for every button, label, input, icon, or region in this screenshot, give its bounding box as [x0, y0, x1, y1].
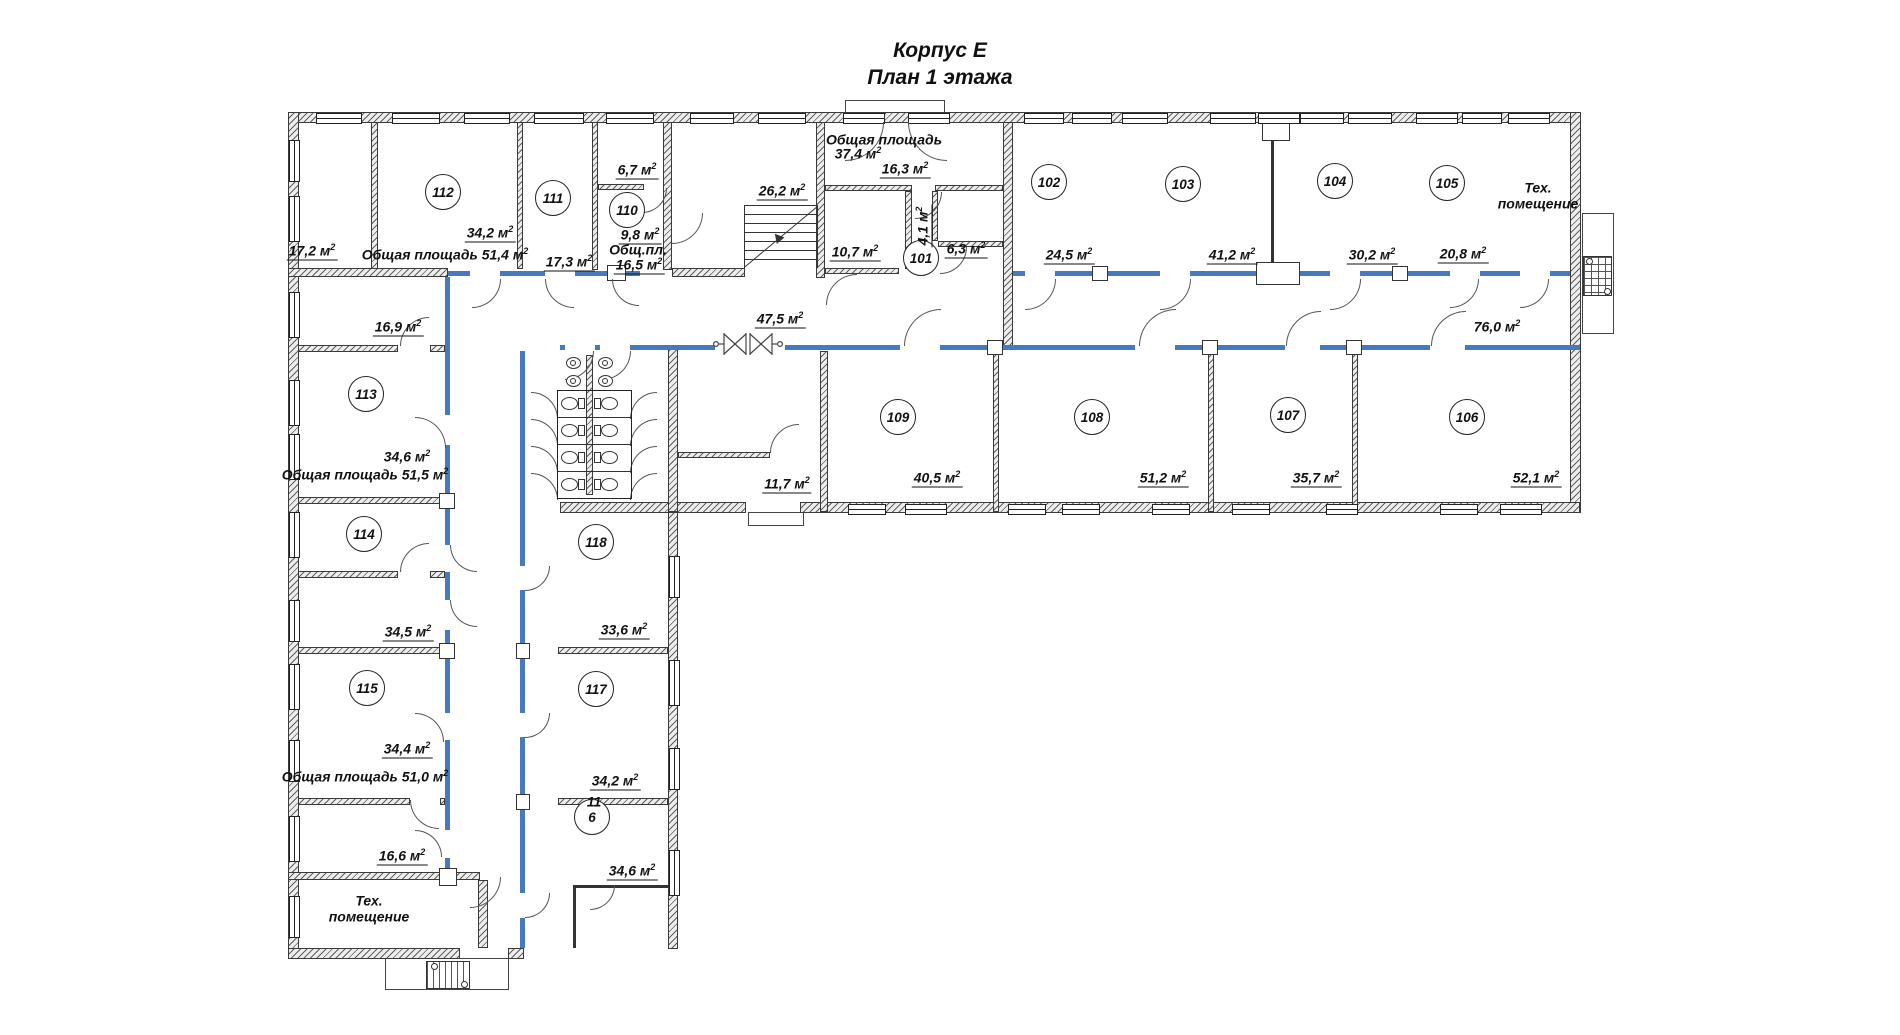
- room-number: 115: [349, 670, 385, 706]
- wall-post: [987, 340, 1003, 355]
- handrail-post-icon: [1604, 288, 1611, 295]
- door-arc: [525, 713, 550, 738]
- toilet-icon: [561, 451, 578, 464]
- area-label-text: 10,7 м2: [830, 245, 881, 262]
- area-label-text: Общая площадь 51,0 м2: [282, 770, 448, 785]
- room-number: 118: [578, 524, 614, 560]
- plan-title: Корпус Е План 1 этажа: [867, 37, 1012, 91]
- window: [1072, 113, 1112, 124]
- room-number: 108: [1074, 399, 1110, 435]
- window: [669, 660, 680, 706]
- area-label: Тех.: [355, 894, 382, 909]
- window: [905, 504, 947, 515]
- area-label: 16,6 м2: [377, 849, 428, 866]
- wall: [560, 502, 746, 513]
- plan-title-line2: План 1 этажа: [867, 64, 1012, 91]
- glazed-partition: [1175, 345, 1285, 350]
- wall-post: [1256, 262, 1300, 285]
- area-label-text: 20,8 м2: [1438, 247, 1489, 264]
- room-number: 103: [1165, 166, 1201, 202]
- handrail-post-icon: [431, 963, 438, 970]
- area-label-text: 26,2 м2: [757, 184, 808, 201]
- wall: [298, 345, 398, 352]
- window: [1210, 113, 1256, 124]
- wall-post: [439, 868, 457, 886]
- door-arc: [531, 419, 558, 446]
- glazed-partition: [520, 351, 525, 566]
- area-label-text: 52,1 м2: [1511, 471, 1562, 488]
- window: [1440, 504, 1478, 515]
- area-label: 34,2 м2: [590, 774, 641, 791]
- toilet-icon: [561, 478, 578, 491]
- glazed-partition: [445, 277, 450, 415]
- window: [289, 896, 300, 938]
- floor-plan-canvas: Корпус Е План 1 этажа 101102103104105106…: [0, 0, 1900, 1035]
- area-label: 34,6 м2: [384, 450, 431, 465]
- window: [1508, 113, 1550, 124]
- wall: [558, 798, 668, 805]
- handrail-post-icon: [461, 981, 468, 988]
- room-number: 117: [578, 671, 614, 707]
- toilet-tank-icon: [578, 452, 585, 463]
- wall: [678, 452, 770, 458]
- window: [289, 600, 300, 642]
- toilet-tank-icon: [594, 452, 601, 463]
- door-arc: [1139, 309, 1176, 346]
- room-number: 107: [1270, 397, 1306, 433]
- door-arc: [770, 424, 799, 453]
- glazed-partition: [448, 271, 470, 276]
- door-arc: [531, 473, 558, 500]
- toilet-tank-icon: [578, 398, 585, 409]
- door-arc: [531, 392, 558, 419]
- door-arc: [672, 213, 703, 244]
- door-arc: [630, 419, 657, 446]
- door-arc: [826, 274, 857, 305]
- area-label-text: 4,1 м2: [916, 205, 933, 248]
- glazed-partition: [785, 345, 900, 350]
- area-label: 16,3 м2: [880, 162, 931, 179]
- area-label-text: 24,5 м2: [1044, 248, 1095, 265]
- glazed-partition: [1320, 345, 1430, 350]
- door-arc: [415, 417, 446, 448]
- window: [848, 504, 886, 515]
- glazed-partition: [500, 271, 545, 276]
- window: [534, 113, 584, 124]
- toilet-tank-icon: [578, 425, 585, 436]
- porch-outline: [748, 512, 804, 526]
- toilet-tank-icon: [594, 398, 601, 409]
- double-door-icon: [712, 329, 784, 359]
- area-label-text: 34,4 м2: [382, 742, 433, 759]
- wall: [1003, 122, 1013, 346]
- wall: [1352, 351, 1358, 512]
- area-label-text: 34,5 м2: [383, 625, 434, 642]
- toilet-tank-icon: [594, 479, 601, 490]
- area-label-text: 16,3 м2: [880, 162, 931, 179]
- window: [1232, 504, 1270, 515]
- toilet-tank-icon: [594, 425, 601, 436]
- area-label: 76,0 м2: [1474, 320, 1521, 335]
- door-arc: [1025, 279, 1056, 310]
- room-number: 104: [1317, 163, 1353, 199]
- area-label: 34,4 м2: [382, 742, 433, 759]
- wall-post: [1392, 266, 1408, 281]
- wall: [288, 948, 460, 959]
- area-label: 6,7 м2: [616, 163, 659, 180]
- door-arc: [1450, 279, 1479, 308]
- door-arc: [1520, 279, 1549, 308]
- area-label-text: помещение: [1498, 197, 1579, 212]
- wall: [1208, 351, 1214, 512]
- glazed-partition: [1480, 271, 1520, 276]
- area-label-text: 17,3 м2: [544, 255, 595, 272]
- wall-post: [1346, 340, 1362, 355]
- area-label: 26,2 м2: [757, 184, 808, 201]
- room-number: 105: [1429, 165, 1465, 201]
- area-label-text: Тех.: [355, 894, 382, 909]
- wall: [672, 268, 745, 277]
- area-label: Тех.: [1524, 181, 1551, 196]
- area-label-text: Общая площадь 51,5 м2: [282, 468, 448, 483]
- window: [1152, 504, 1190, 515]
- wall-post: [1262, 122, 1290, 141]
- area-label-text: 30,2 м2: [1347, 248, 1398, 265]
- area-label-text: Общая площадь 51,4 м2: [362, 248, 528, 263]
- glazed-partition: [595, 345, 600, 350]
- sink-tap-icon: [570, 360, 576, 366]
- area-label-text: Тех.: [1524, 181, 1551, 196]
- area-label: 52,1 м2: [1511, 471, 1562, 488]
- wall: [430, 345, 445, 352]
- door-arc: [630, 392, 657, 419]
- wall: [298, 497, 445, 504]
- toilet-icon: [601, 451, 618, 464]
- window: [289, 196, 300, 242]
- handrail-post-icon: [1586, 258, 1593, 265]
- sink-tap-icon: [570, 378, 576, 384]
- wall: [1570, 112, 1581, 513]
- window: [1024, 113, 1064, 124]
- area-label-text: 17,2 м2: [287, 244, 338, 261]
- glazed-partition: [520, 737, 525, 893]
- door-arc: [525, 893, 550, 918]
- area-label: 4,1 м2: [916, 205, 933, 248]
- area-label-text: 47,5 м2: [755, 312, 806, 329]
- toilet-icon: [601, 478, 618, 491]
- glazed-partition: [520, 918, 525, 948]
- area-label-text: 35,7 м2: [1291, 471, 1342, 488]
- wall: [430, 571, 445, 578]
- area-label-text: 11: [587, 795, 602, 810]
- window: [289, 292, 300, 338]
- window: [1062, 504, 1100, 515]
- glazed-partition: [1550, 271, 1570, 276]
- window: [1258, 113, 1300, 124]
- area-label: 41,2 м2: [1207, 248, 1258, 265]
- door-arc: [400, 543, 429, 572]
- wall: [825, 185, 912, 191]
- glazed-partition: [630, 345, 715, 350]
- window: [1416, 113, 1458, 124]
- thin-wall: [573, 885, 675, 888]
- area-label: 34,2 м2: [465, 226, 516, 243]
- wall-post: [516, 794, 530, 810]
- door-arc: [590, 885, 615, 910]
- window: [289, 664, 300, 710]
- area-label-text: 34,6 м2: [384, 450, 431, 465]
- sink-tap-icon: [602, 378, 608, 384]
- door-arc: [904, 309, 941, 346]
- door-arc: [450, 600, 477, 627]
- area-label-text: помещение: [329, 910, 410, 925]
- area-label-text: 6,7 м2: [616, 163, 659, 180]
- room-number: 111: [535, 180, 571, 216]
- window: [289, 816, 300, 862]
- glazed-partition: [1013, 271, 1025, 276]
- area-label: 40,5 м2: [912, 471, 963, 488]
- glazed-partition: [445, 740, 450, 830]
- window: [1500, 504, 1542, 515]
- door-arc: [612, 279, 639, 306]
- window: [758, 113, 806, 124]
- room-number: 109: [880, 399, 916, 435]
- area-label-text: 40,5 м2: [912, 471, 963, 488]
- window: [1008, 504, 1046, 515]
- door-arc: [472, 279, 501, 308]
- room-number: 114: [346, 516, 382, 552]
- area-label: помещение: [1498, 197, 1579, 212]
- wall: [288, 268, 448, 277]
- window: [289, 380, 300, 426]
- area-label-text: 33,6 м2: [599, 623, 650, 640]
- window: [464, 113, 510, 124]
- area-label: 6,3 м2: [945, 242, 988, 259]
- thin-wall: [573, 888, 576, 948]
- wall: [668, 345, 678, 512]
- wall: [508, 948, 524, 959]
- toilet-icon: [561, 424, 578, 437]
- window: [289, 140, 300, 182]
- room-number: 110: [609, 192, 645, 228]
- wall-post: [439, 493, 455, 509]
- wall: [935, 185, 1003, 191]
- sink-tap-icon: [602, 360, 608, 366]
- wall: [825, 268, 899, 274]
- area-label: Общая площадь 51,4 м2: [362, 248, 528, 263]
- window: [392, 113, 440, 124]
- wall: [592, 122, 598, 270]
- area-label-text: 16,6 м2: [377, 849, 428, 866]
- wall-post: [516, 643, 530, 659]
- window: [669, 850, 680, 896]
- area-label: 17,2 м2: [287, 244, 338, 261]
- door-arc: [531, 446, 558, 473]
- area-label-text: 41,2 м2: [1207, 248, 1258, 265]
- wall: [598, 184, 644, 190]
- room-number: 113: [348, 376, 384, 412]
- area-label: 33,6 м2: [599, 623, 650, 640]
- area-label: 11: [587, 795, 602, 810]
- door-arc: [470, 877, 501, 908]
- area-label-text: 76,0 м2: [1474, 320, 1521, 335]
- door-arc: [1330, 279, 1361, 310]
- area-label: 17,3 м2: [544, 255, 595, 272]
- window: [289, 512, 300, 558]
- door-arc: [545, 279, 574, 308]
- area-label-text: 34,6 м2: [607, 864, 658, 881]
- window: [669, 748, 680, 790]
- wall-post: [1202, 340, 1218, 355]
- door-arc: [1431, 311, 1466, 346]
- area-label: 30,2 м2: [1347, 248, 1398, 265]
- area-label-text: 16,9 м2: [373, 320, 424, 337]
- wall: [820, 351, 828, 512]
- toilet-icon: [561, 397, 578, 410]
- area-label: 20,8 м2: [1438, 247, 1489, 264]
- area-label: 16,9 м2: [373, 320, 424, 337]
- area-label-text: 51,2 м2: [1138, 471, 1189, 488]
- area-label: 35,7 м2: [1291, 471, 1342, 488]
- door-arc: [450, 545, 477, 572]
- area-label: Общая площадь 51,0 м2: [282, 770, 448, 785]
- glazed-partition: [1465, 345, 1580, 350]
- area-label: 11,7 м2: [762, 477, 811, 494]
- area-label: 47,5 м2: [755, 312, 806, 329]
- window: [606, 113, 654, 124]
- area-label-text: 34,2 м2: [465, 226, 516, 243]
- wall: [298, 571, 398, 578]
- area-label: 37,4 м2: [835, 147, 882, 162]
- window: [316, 113, 362, 124]
- window: [690, 113, 734, 124]
- wall: [298, 798, 410, 805]
- toilet-tank-icon: [578, 479, 585, 490]
- window: [1300, 113, 1344, 124]
- window: [1462, 113, 1502, 124]
- area-label-text: 11,7 м2: [762, 477, 811, 494]
- door-arc: [415, 713, 444, 742]
- room-number: 102: [1031, 164, 1067, 200]
- wall: [993, 351, 999, 512]
- area-label: 16,5 м2: [614, 258, 665, 275]
- wall-post: [439, 643, 455, 659]
- glazed-partition: [445, 572, 450, 600]
- glazed-partition: [940, 345, 1135, 350]
- area-label: 10,7 м2: [830, 245, 881, 262]
- window: [669, 556, 680, 598]
- area-label-text: 6,3 м2: [945, 242, 988, 259]
- area-label: Общая площадь 51,5 м2: [282, 468, 448, 483]
- door-arc: [630, 473, 657, 500]
- window: [1122, 113, 1168, 124]
- thin-wall: [1271, 138, 1274, 266]
- area-label: 34,6 м2: [607, 864, 658, 881]
- room-number: 112: [425, 174, 461, 210]
- area-label: помещение: [329, 910, 410, 925]
- plan-title-line1: Корпус Е: [867, 37, 1012, 64]
- area-label: 24,5 м2: [1044, 248, 1095, 265]
- wall: [298, 647, 445, 654]
- door-arc: [1160, 279, 1191, 310]
- window: [1348, 113, 1392, 124]
- area-label-text: 37,4 м2: [835, 147, 882, 162]
- room-number: 106: [1449, 399, 1485, 435]
- wall-post: [1092, 266, 1108, 281]
- door-arc: [525, 566, 550, 591]
- window: [1326, 504, 1358, 515]
- toilet-icon: [601, 397, 618, 410]
- wall: [558, 647, 668, 654]
- door-arc: [410, 800, 439, 829]
- area-label: 51,2 м2: [1138, 471, 1189, 488]
- door-arc: [630, 446, 657, 473]
- area-label-text: 34,2 м2: [590, 774, 641, 791]
- glazed-partition: [560, 345, 565, 350]
- area-label-text: 16,5 м2: [614, 258, 665, 275]
- area-label: 34,5 м2: [383, 625, 434, 642]
- toilet-icon: [601, 424, 618, 437]
- door-arc: [1286, 311, 1321, 346]
